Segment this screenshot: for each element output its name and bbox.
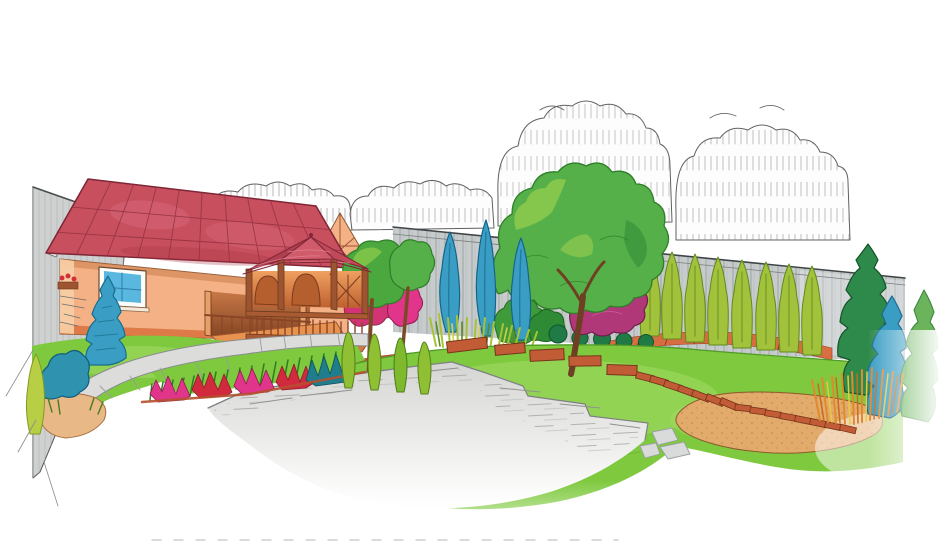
gazebo-post	[331, 258, 337, 310]
flower	[60, 276, 65, 281]
path-slab	[530, 349, 565, 362]
gazebo-finial	[309, 233, 313, 237]
bottom-fade	[140, 480, 940, 549]
flower	[72, 277, 77, 282]
juniper	[342, 332, 355, 388]
gazebo-post	[278, 258, 284, 310]
gazebo-post	[246, 269, 252, 312]
sketch-canvas: Перспективная зарисовка к концепции благ…	[0, 0, 940, 549]
landscape-sketch-svg	[0, 0, 940, 549]
shrub-ball	[549, 325, 567, 343]
path-slab	[569, 356, 601, 367]
path-slab	[495, 343, 526, 356]
porch-post	[205, 291, 211, 336]
juniper	[394, 338, 407, 392]
flower	[66, 274, 71, 279]
gazebo-post	[362, 268, 368, 314]
sand-brick	[735, 404, 752, 412]
flower-box	[58, 282, 78, 289]
juniper	[368, 334, 381, 390]
path-slab	[607, 364, 637, 375]
